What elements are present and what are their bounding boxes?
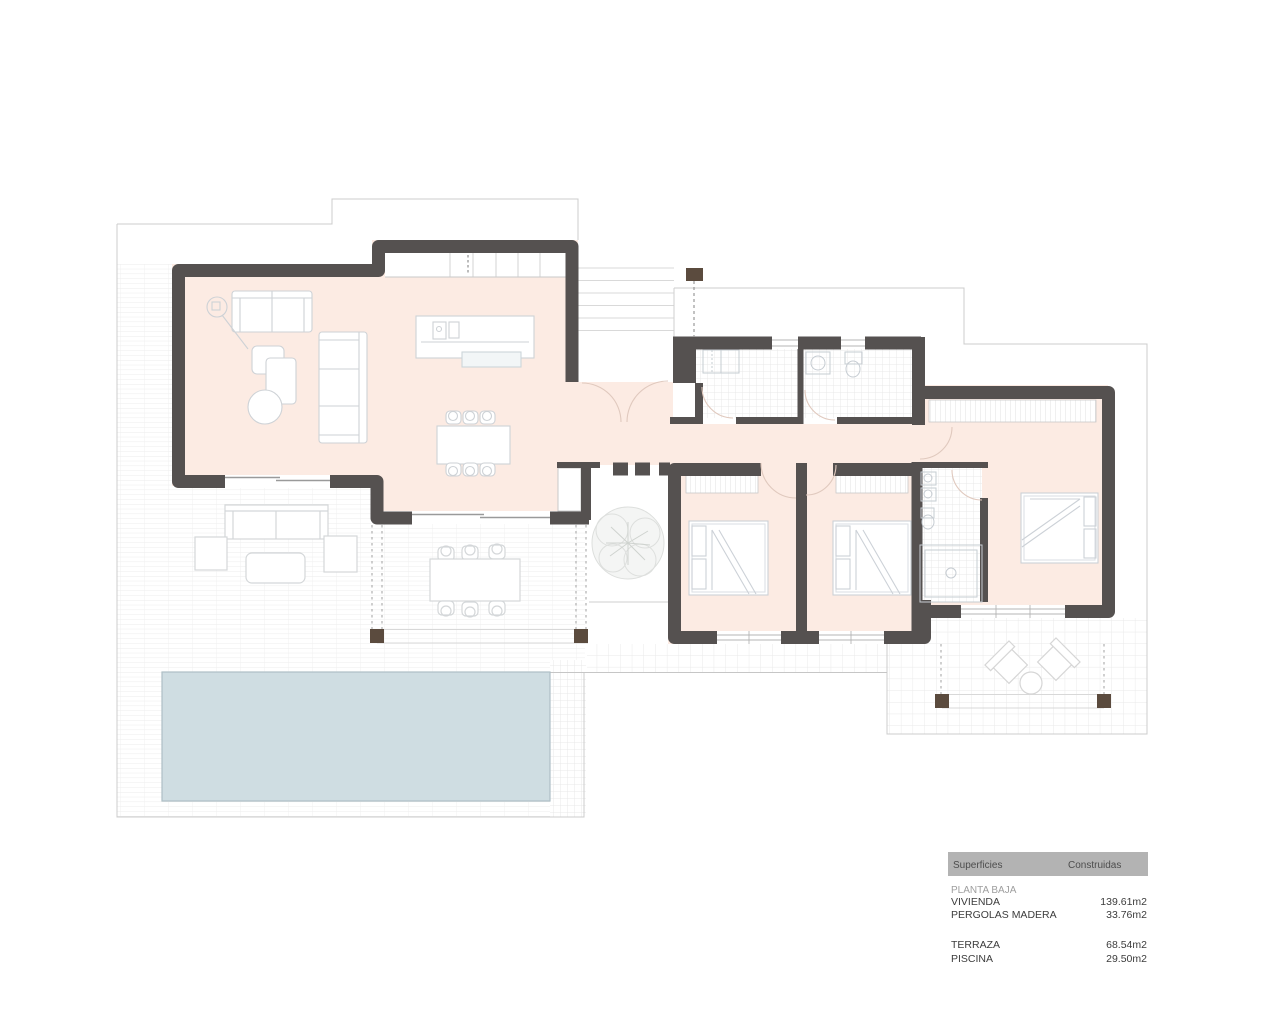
svg-text:PISCINA: PISCINA [951,953,993,965]
svg-text:139.61m2: 139.61m2 [1100,896,1147,908]
svg-text:VIVIENDA: VIVIENDA [951,896,1000,908]
svg-text:TERRAZA: TERRAZA [951,939,1000,951]
svg-text:29.50m2: 29.50m2 [1106,953,1147,965]
svg-text:33.76m2: 33.76m2 [1106,909,1147,921]
svg-text:68.54m2: 68.54m2 [1106,939,1147,951]
svg-text:PERGOLAS MADERA: PERGOLAS MADERA [951,909,1057,921]
svg-text:PLANTA BAJA: PLANTA BAJA [951,885,1017,896]
svg-text:Construidas: Construidas [1068,860,1121,871]
svg-text:Superficies: Superficies [953,860,1002,871]
